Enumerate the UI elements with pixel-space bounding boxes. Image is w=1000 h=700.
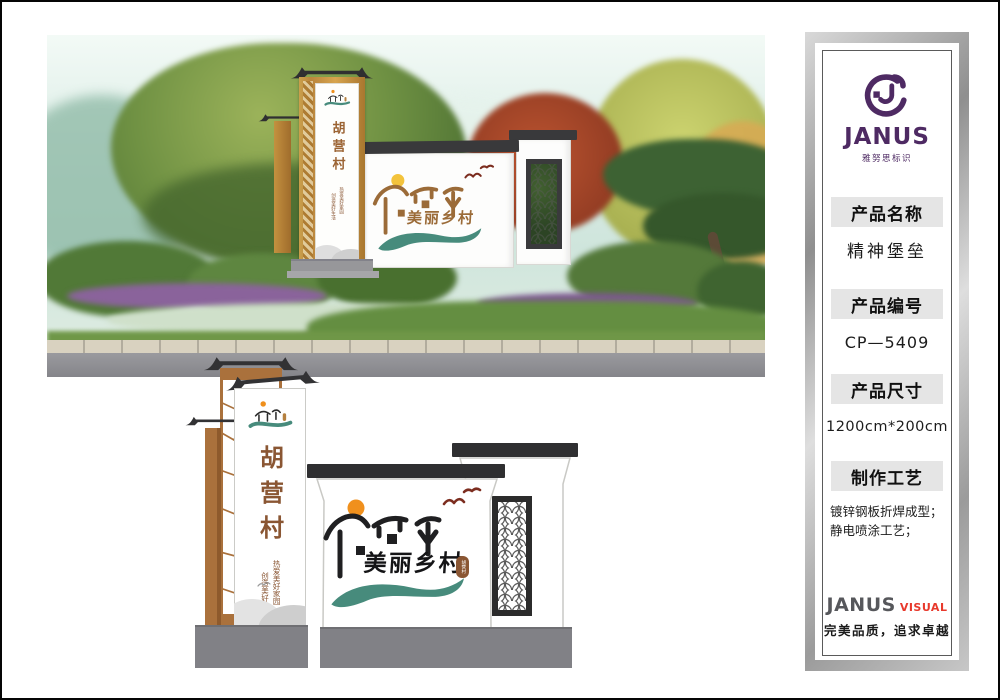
product-name-header: 产品名称 bbox=[831, 197, 943, 227]
village-name-vertical: 胡营村 bbox=[328, 112, 347, 184]
janus-logo-text: JANUS bbox=[844, 124, 930, 150]
slogan-left: 热爱美好家园 bbox=[339, 187, 344, 220]
catalog-page: 美丽乡村 bbox=[0, 0, 1000, 700]
pillar-lattice-strip bbox=[303, 81, 313, 261]
process-header: 制作工艺 bbox=[831, 461, 943, 491]
side-post bbox=[205, 428, 221, 625]
info-panel-content: JANUS 雅努思标识 产品名称 精神堡垒 产品编号 CP—5409 产品尺寸 … bbox=[822, 50, 952, 656]
village-name-vertical: 胡营村 bbox=[253, 438, 288, 556]
river-swoosh bbox=[322, 574, 492, 618]
side-post bbox=[274, 121, 291, 253]
wall-base bbox=[320, 627, 572, 668]
footer-brand: JANUS bbox=[827, 594, 896, 616]
product-name-value: 精神堡垒 bbox=[847, 237, 927, 262]
seal-text: 胡营村 bbox=[460, 560, 465, 574]
info-panel: JANUS 雅努思标识 产品名称 精神堡垒 产品编号 CP—5409 产品尺寸 … bbox=[805, 32, 969, 671]
footer-logo: JANUS VISUAL bbox=[827, 594, 948, 616]
pillar-base bbox=[195, 625, 308, 668]
village-logo bbox=[243, 398, 297, 432]
footer-brand-suffix: VISUAL bbox=[900, 601, 948, 614]
janus-logo-subtitle: 雅努思标识 bbox=[862, 152, 912, 164]
lattice-window bbox=[526, 159, 562, 249]
river-swoosh bbox=[371, 225, 503, 259]
footer-tagline: 完美品质，追求卓越 bbox=[824, 620, 950, 639]
product-size-header: 产品尺寸 bbox=[831, 374, 943, 404]
flat-drawing: 美丽乡村 胡营村 bbox=[187, 348, 607, 678]
render-photo: 美丽乡村 bbox=[47, 35, 765, 377]
birds-motif bbox=[256, 580, 278, 590]
pillar-base-step bbox=[287, 271, 379, 278]
wall-sign-title: 美丽乡村 bbox=[363, 544, 465, 578]
product-code-value: CP—5409 bbox=[845, 333, 930, 352]
product-code-header: 产品编号 bbox=[831, 289, 943, 319]
village-logo bbox=[322, 88, 352, 108]
product-size-value: 1200cm*200cm bbox=[826, 419, 948, 435]
janus-logo-mark bbox=[861, 73, 913, 121]
process-value: 镀锌钢板折焊成型；静电喷涂工艺； bbox=[830, 503, 944, 541]
slogan-right: 创造美好生活 bbox=[330, 193, 335, 220]
